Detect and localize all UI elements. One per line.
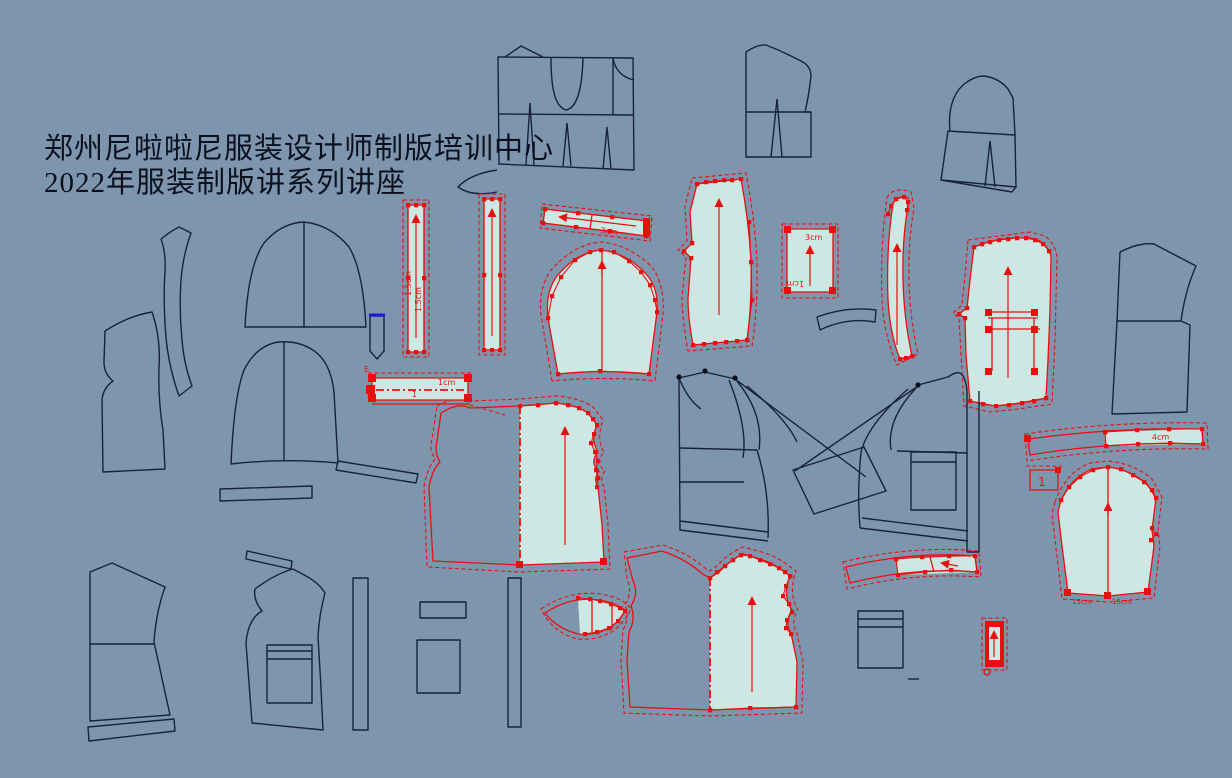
outline — [948, 76, 1015, 135]
piece-sleeve-red-left[interactable] — [540, 242, 663, 381]
hem-right — [860, 518, 968, 541]
hem-label: 15cm — [1112, 598, 1132, 606]
outline — [353, 578, 368, 730]
piece-curved-strip-red[interactable] — [882, 190, 918, 365]
piece-binding-strip-a[interactable]: 1.5cm 1.5cm — [403, 200, 429, 357]
end-cap — [643, 218, 650, 237]
width-label: 3cm — [600, 226, 618, 237]
piece-facing-strip[interactable] — [161, 227, 192, 396]
corner-node — [516, 561, 523, 568]
width-label: 3cm — [805, 233, 822, 242]
mark-node — [985, 326, 992, 333]
tag-node — [1055, 467, 1061, 473]
pocket — [911, 452, 956, 510]
outline — [684, 179, 751, 345]
outline — [90, 563, 170, 721]
lower-outline — [941, 131, 1016, 187]
end-node — [1024, 435, 1031, 442]
hem-label: 15cm — [1072, 598, 1092, 606]
outline — [420, 602, 466, 618]
cross-line — [735, 379, 918, 477]
outline — [220, 486, 312, 501]
outline — [246, 569, 325, 730]
piece-small-band[interactable] — [420, 602, 466, 618]
piece-back-bodice-top[interactable] — [746, 45, 811, 157]
page-title-line1: 郑州尼啦啦尼服装设计师制版培训中心 — [44, 132, 554, 165]
outline — [858, 611, 903, 668]
outline — [817, 309, 876, 330]
outline — [161, 227, 192, 396]
outline — [102, 312, 165, 472]
fill-half — [710, 554, 797, 710]
piece-angled-band-navy[interactable] — [336, 461, 418, 483]
side-seam-right — [859, 452, 861, 528]
shoulder-band — [246, 551, 292, 569]
outline-top — [1120, 244, 1196, 321]
pivot-dot — [915, 382, 920, 387]
hem-node — [1144, 588, 1151, 595]
outline — [245, 222, 366, 327]
outline-bottom — [1112, 252, 1190, 414]
corner-node — [368, 394, 376, 402]
mark-node — [1031, 368, 1038, 375]
piece-back-navy-bottom[interactable] — [88, 563, 175, 741]
flap — [458, 170, 497, 194]
patch-pocket — [267, 645, 312, 703]
width-label: 1.5cm — [404, 271, 413, 296]
outline — [959, 238, 1051, 406]
outline — [370, 316, 384, 359]
piece-side-panel-left[interactable] — [102, 312, 165, 472]
piece-long-band[interactable]: 4cm — [1024, 423, 1208, 461]
piece-sleeve-cap-navy-1[interactable] — [245, 222, 366, 327]
piece-placket-strip-1[interactable] — [353, 578, 368, 730]
piece-pocket-flap[interactable] — [858, 611, 919, 679]
pivot-dot — [702, 368, 707, 373]
piece-sleeve-red-right[interactable]: 15cm 15cm 1 — [1026, 461, 1162, 606]
mark-node — [985, 368, 992, 375]
dart — [985, 141, 995, 187]
piece-back-bodice-navy-right[interactable] — [1112, 244, 1196, 414]
piece-side-panel-red[interactable] — [678, 173, 757, 351]
right-edges — [967, 391, 979, 552]
corner-node — [464, 394, 472, 402]
piece-curved-band-lower[interactable] — [843, 549, 981, 589]
mark-node — [985, 309, 992, 316]
piece-pocket-navy-center[interactable] — [417, 640, 460, 693]
waist-left — [680, 448, 757, 482]
piece-small-tab-red[interactable] — [982, 618, 1007, 675]
mark-node — [1031, 326, 1038, 333]
hem-node — [1104, 592, 1111, 599]
piece-back-bodice-red[interactable] — [953, 232, 1057, 412]
waist-right — [897, 451, 967, 453]
mark-node — [1031, 309, 1038, 316]
tag-number: 1 — [1038, 475, 1046, 489]
corner-node — [600, 558, 607, 565]
pattern-sheet: 1.5cm 1.5cm 3cm — [0, 0, 1232, 778]
mid-node — [366, 385, 375, 394]
outline — [746, 45, 811, 157]
corner-arc — [613, 58, 634, 80]
corner-node — [464, 374, 472, 382]
piece-placket-strip-2[interactable] — [508, 578, 521, 727]
piece-collar-strip-navy[interactable] — [817, 309, 876, 330]
hem-node — [1064, 589, 1071, 596]
fill-half — [578, 598, 625, 634]
notch-flag — [505, 46, 543, 57]
fill-half — [520, 403, 604, 565]
corner-node — [784, 226, 791, 233]
outline — [888, 197, 912, 359]
pivot-dot — [732, 375, 737, 380]
piece-loop-tab[interactable] — [369, 315, 385, 359]
outline — [336, 461, 418, 483]
outline — [417, 640, 460, 693]
piece-front-on-fold-lower[interactable] — [621, 545, 803, 716]
number-label: 1 — [412, 390, 417, 399]
armhole-curve — [551, 58, 583, 110]
piece-front-bodice-top-right[interactable] — [941, 76, 1016, 192]
width-label: 1cm — [787, 279, 804, 288]
piece-draft-block[interactable] — [458, 46, 634, 194]
piece-sleeve-cap-navy-2[interactable] — [231, 341, 338, 464]
piece-waistband-small[interactable] — [220, 486, 312, 501]
width-label: 1.5cm — [414, 287, 423, 312]
dart — [603, 127, 611, 169]
corner-node — [829, 226, 836, 233]
side-seam-left — [757, 450, 768, 538]
hook — [984, 669, 990, 675]
piece-pocket-square[interactable]: 3cm 1cm — [782, 224, 838, 298]
right-shoulder — [918, 373, 967, 394]
page-title-line2: 2022年服装制版讲系列讲座 — [44, 166, 406, 199]
left-body — [679, 372, 768, 541]
dart — [771, 99, 782, 157]
piece-raglan-draft[interactable] — [676, 368, 979, 552]
pattern-canvas[interactable]: 1.5cm 1.5cm 3cm — [0, 0, 1232, 778]
piece-angled-band-red[interactable]: 3cm — [540, 204, 652, 241]
piece-collar-crescent[interactable] — [541, 593, 631, 639]
corner-node — [368, 374, 376, 382]
ref-label: E — [364, 365, 369, 374]
width-label: 4cm — [1152, 432, 1170, 442]
piece-front-navy-bottom[interactable] — [246, 551, 325, 730]
corner-node — [829, 287, 836, 294]
outline — [543, 209, 648, 236]
armhole-fan-left — [729, 380, 797, 458]
piece-front-on-fold-upper[interactable] — [424, 396, 610, 572]
pivot-dot — [676, 374, 681, 379]
piece-binding-strip-b[interactable] — [479, 194, 505, 355]
outline — [1058, 467, 1156, 596]
width-label: 1cm — [438, 378, 455, 387]
hem-strip — [88, 719, 175, 741]
outline — [508, 578, 521, 727]
dart — [563, 123, 571, 166]
